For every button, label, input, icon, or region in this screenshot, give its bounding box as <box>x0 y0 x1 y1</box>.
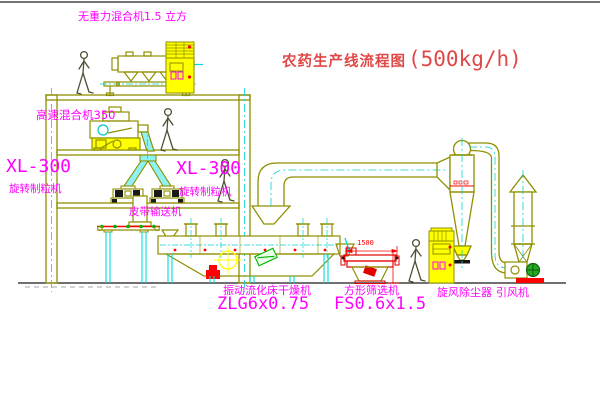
process-flow-diagram: 农药生产线流程图(500kg/h) 无重力混合机1.5 立方 高速混合机350 … <box>0 0 600 403</box>
high-speed-mixer-label: 高速混合机350 <box>36 110 115 122</box>
electric-control-cabinet-right <box>429 228 454 283</box>
title-text: 农药生产线流程图 <box>282 50 406 71</box>
granulator-left-name-label: 旋转制粒机 <box>9 184 62 195</box>
title-capacity: (500kg/h) <box>408 47 522 71</box>
person-figure <box>77 52 93 94</box>
granulator-right-name-label: 旋转制粒机 <box>179 187 232 198</box>
sieve-model-label: FS0.6x1.5 <box>334 296 426 313</box>
y-chute <box>124 126 171 186</box>
fluid-bed-dryer <box>158 218 354 283</box>
cyclone-label: 旋风除尘器 <box>437 287 492 298</box>
gravity-mixer-label: 无重力混合机1.5 立方 <box>78 11 187 22</box>
dimension-lines <box>347 246 399 284</box>
fan-label: 引风机 <box>496 287 529 298</box>
dryer-model-label: ZLG6x0.75 <box>217 296 309 313</box>
person-figure <box>409 240 425 282</box>
person-figure <box>161 109 177 151</box>
granulator-right-model-label: XL-300 <box>176 160 241 178</box>
belt-conveyor-label: 皮带输送机 <box>129 207 182 218</box>
dimension-1500-label: 1500 <box>357 240 374 247</box>
electric-control-cabinet-top <box>166 42 194 93</box>
dryer-exhaust-duct <box>252 157 450 224</box>
granulator-left-model-label: XL-300 <box>6 158 71 176</box>
diagram-title: 农药生产线流程图(500kg/h) <box>282 47 522 71</box>
induced-draft-fan <box>505 262 544 283</box>
belt-conveyor <box>97 225 160 283</box>
